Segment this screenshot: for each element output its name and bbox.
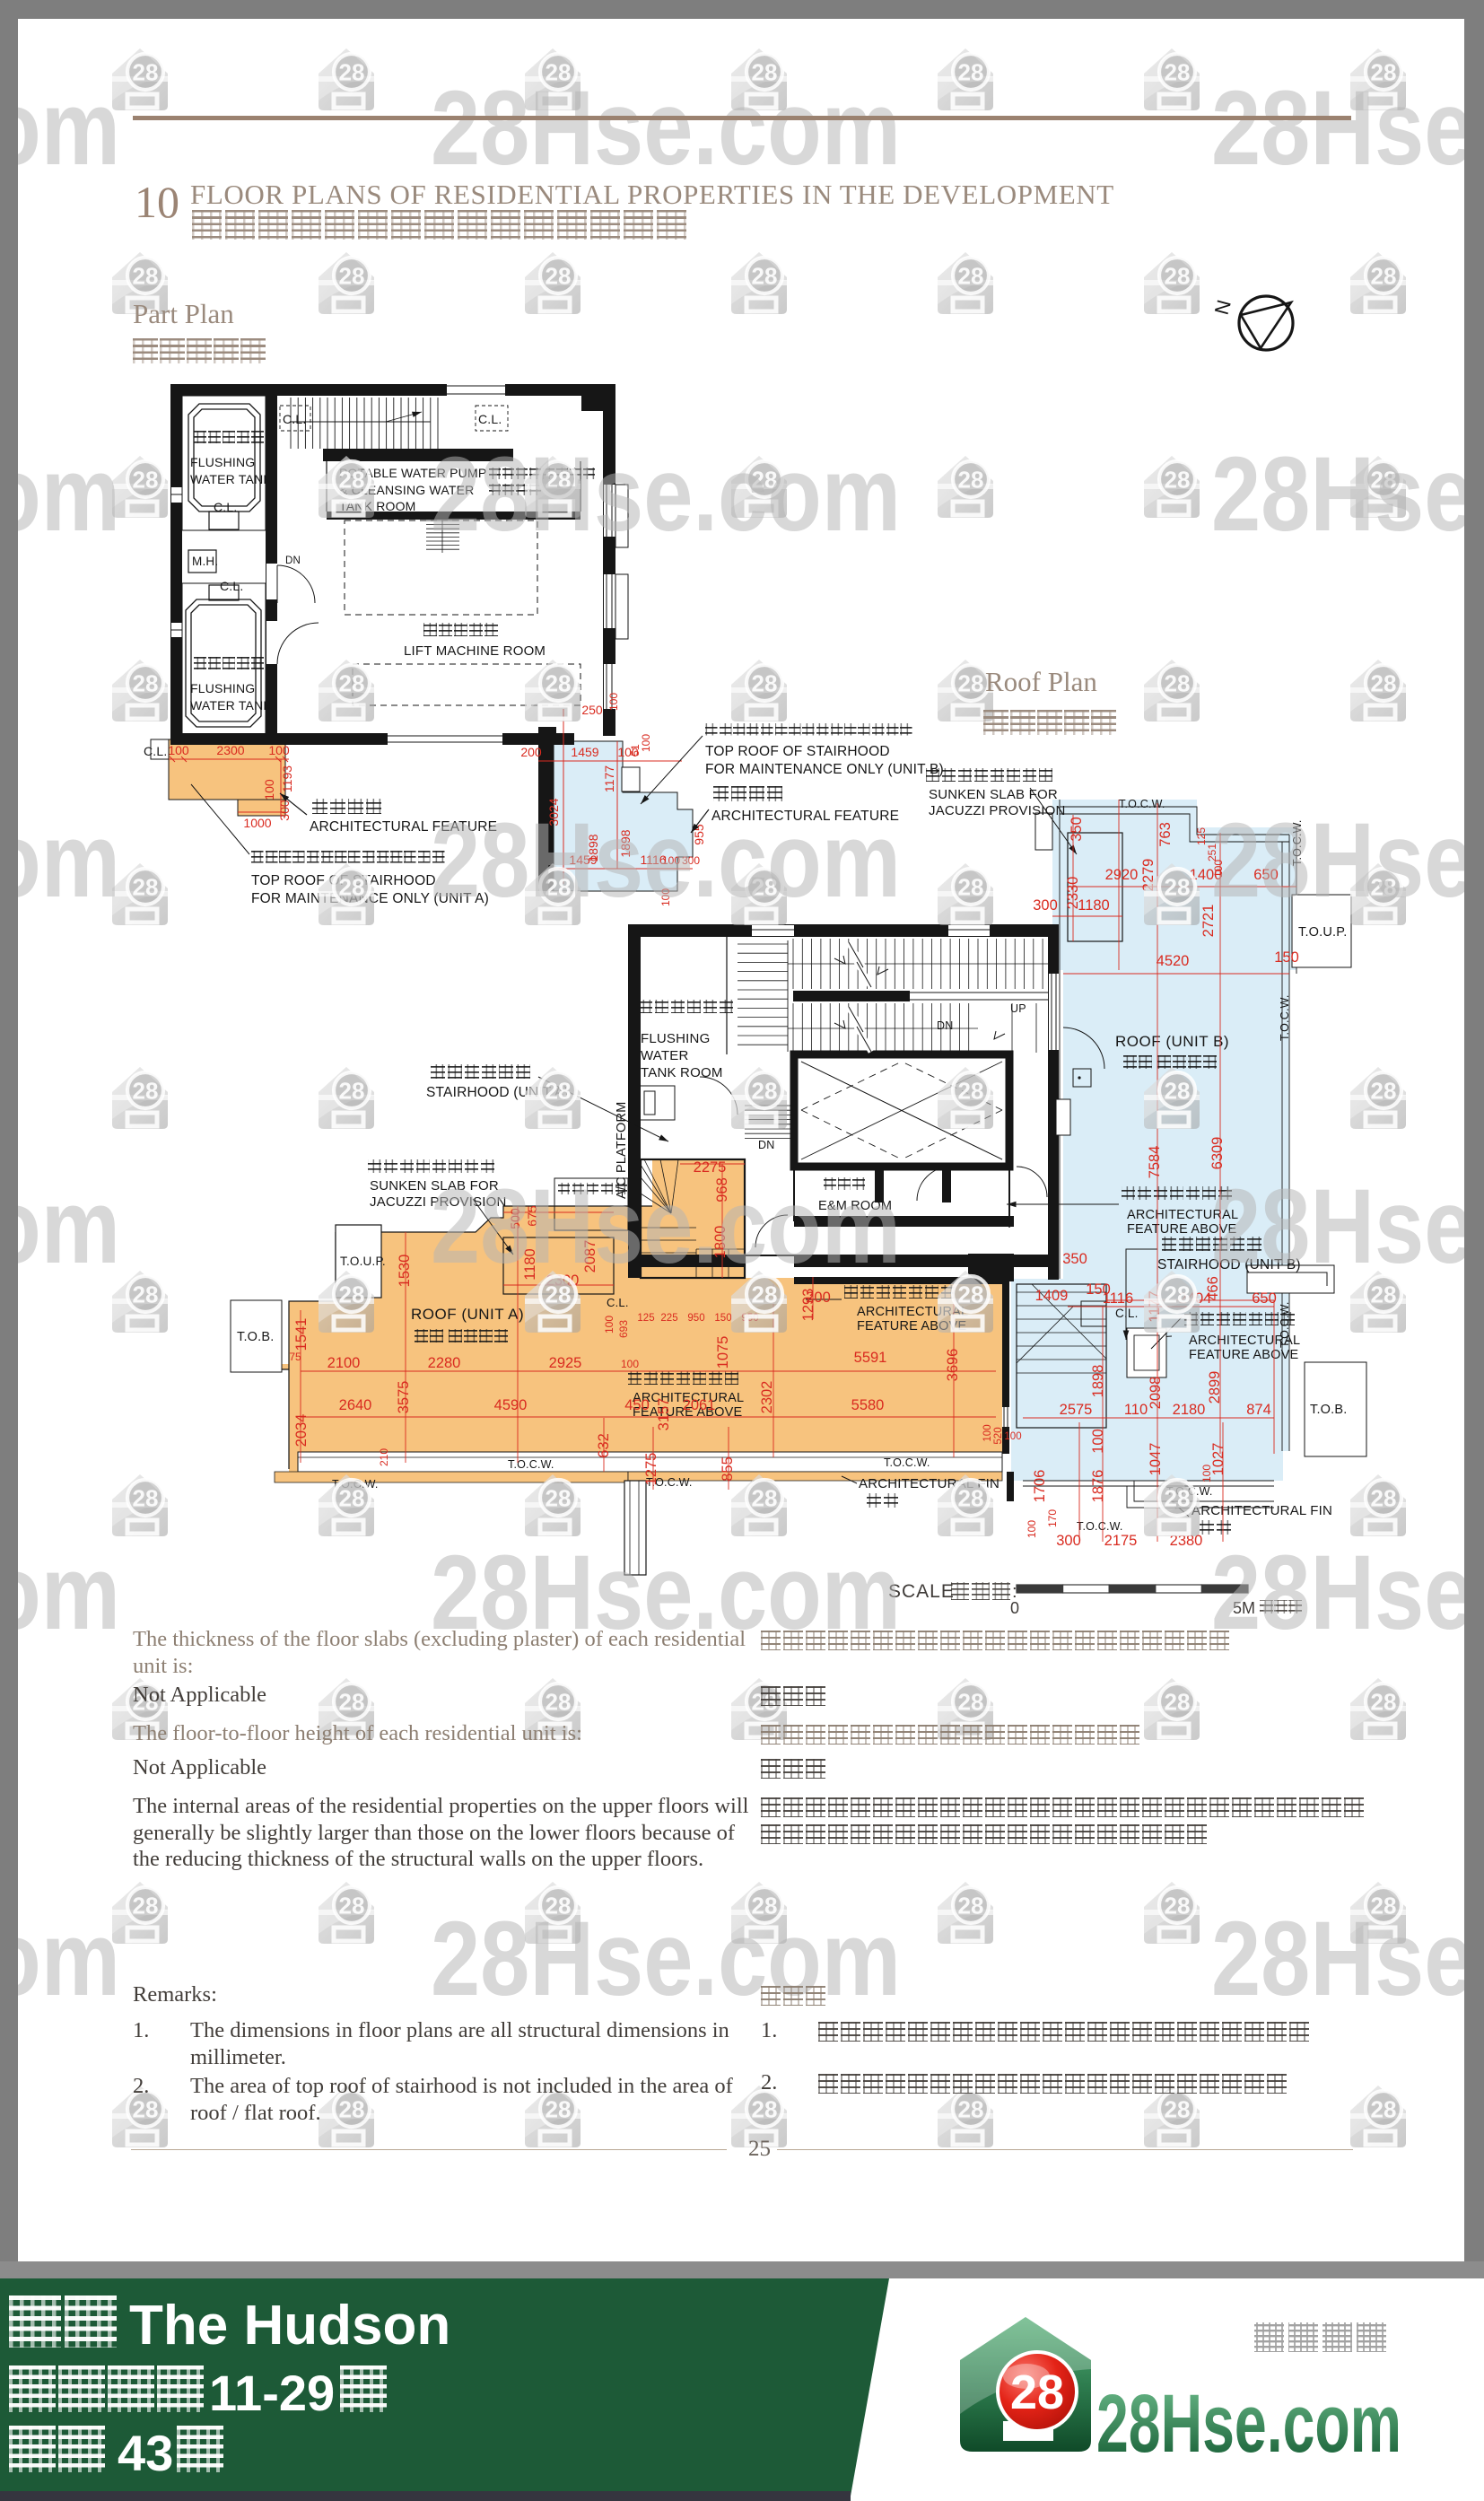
svg-text:28Hse.com: 28Hse.com <box>0 1534 120 1652</box>
svg-text:28Hse.com: 28Hse.com <box>0 69 120 188</box>
svg-text:28Hse.com: 28Hse.com <box>1211 1900 1484 2018</box>
svg-text:28Hse.com: 28Hse.com <box>0 1900 120 2018</box>
svg-text:28Hse.com: 28Hse.com <box>0 435 120 554</box>
svg-text:28Hse.com: 28Hse.com <box>431 69 901 188</box>
svg-text:28Hse.com: 28Hse.com <box>1211 1167 1484 1286</box>
svg-text:28Hse.com: 28Hse.com <box>0 801 120 920</box>
svg-text:28Hse.com: 28Hse.com <box>1211 1534 1484 1652</box>
svg-text:28Hse.com: 28Hse.com <box>431 1167 901 1286</box>
svg-text:28Hse.com: 28Hse.com <box>1211 69 1484 188</box>
svg-text:28Hse.com: 28Hse.com <box>431 801 901 920</box>
svg-text:28Hse.com: 28Hse.com <box>0 1167 120 1286</box>
svg-text:28Hse.com: 28Hse.com <box>1211 801 1484 920</box>
svg-text:28Hse.com: 28Hse.com <box>1096 2378 1401 2470</box>
svg-text:28Hse.com: 28Hse.com <box>431 435 901 554</box>
svg-text:28Hse.com: 28Hse.com <box>1211 435 1484 554</box>
svg-text:28Hse.com: 28Hse.com <box>431 1900 901 2018</box>
svg-text:28: 28 <box>1010 2365 1064 2419</box>
